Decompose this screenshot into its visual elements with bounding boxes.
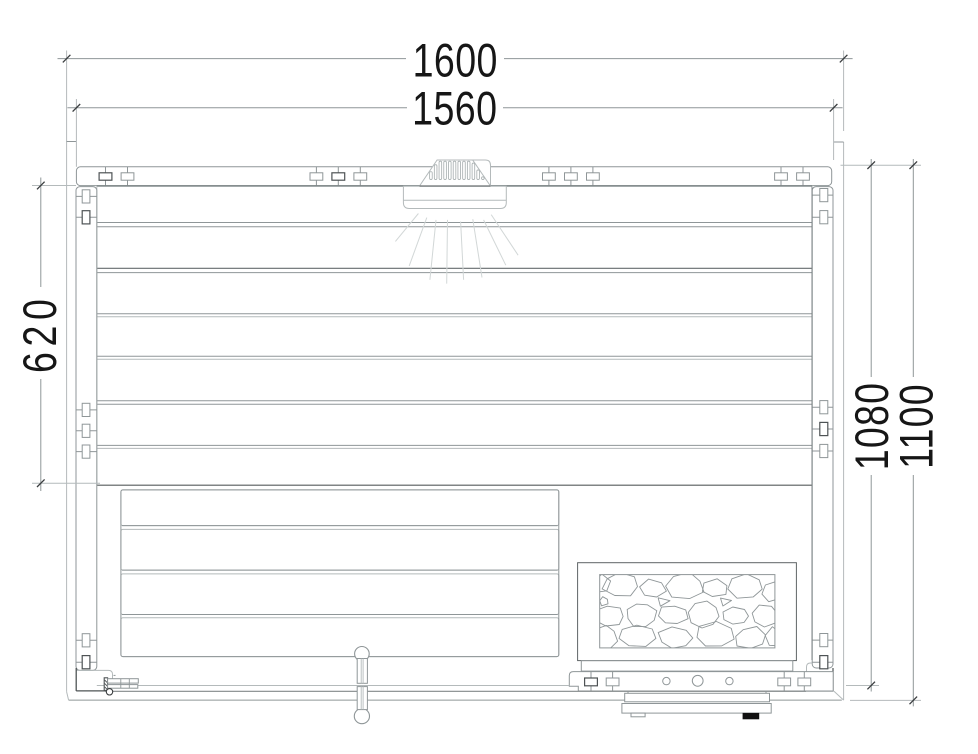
svg-text:620: 620 bbox=[14, 294, 67, 374]
svg-text:1560: 1560 bbox=[412, 82, 497, 135]
svg-text:1100: 1100 bbox=[890, 383, 943, 469]
svg-text:1600: 1600 bbox=[413, 35, 498, 88]
